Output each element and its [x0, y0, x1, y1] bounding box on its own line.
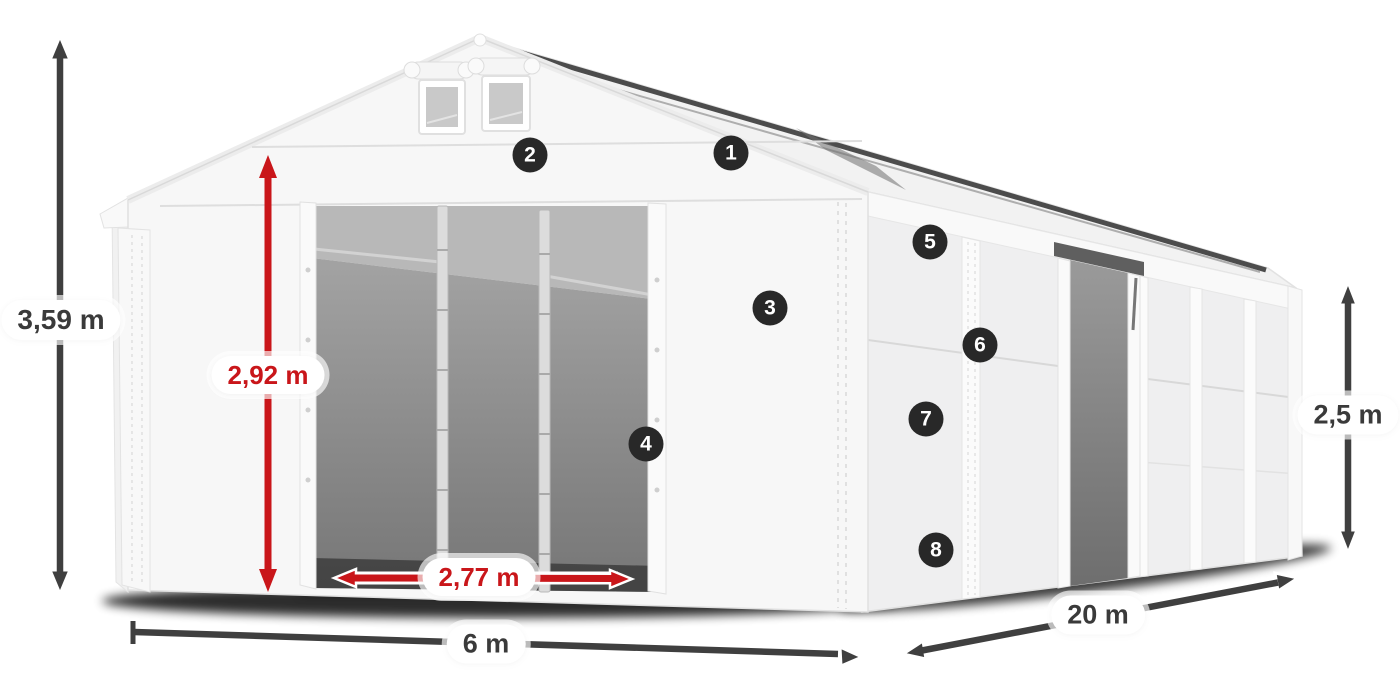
product-dimension-diagram: 3,59 m 2,92 m 2,77 m 6 m 20 m 2,5 m 1 2 …	[0, 0, 1400, 700]
marker-7: 7	[909, 402, 944, 437]
side-door	[1054, 242, 1144, 588]
marker-5: 5	[913, 225, 948, 260]
marker-2: 2	[513, 138, 548, 173]
door-frame-left	[300, 202, 316, 589]
marker-8: 8	[919, 533, 954, 568]
front-left-post	[118, 228, 150, 592]
marker-1: 1	[714, 136, 749, 171]
front-doors	[300, 202, 666, 594]
marker-6: 6	[963, 328, 998, 363]
ridge-cap	[474, 34, 486, 46]
door-height-label: 2,92 m	[212, 356, 325, 394]
interior-curtain	[312, 258, 660, 592]
marker-3: 3	[753, 291, 788, 326]
door-pole-right	[539, 210, 550, 592]
marker-4: 4	[629, 427, 664, 462]
door-pole-left	[437, 206, 448, 591]
side-length-label: 20 m	[1051, 596, 1145, 635]
total-height-label: 3,59 m	[1, 300, 120, 340]
side-height-label: 2,5 m	[1297, 396, 1398, 435]
front-width-label: 6 m	[447, 625, 526, 664]
tent-illustration	[0, 0, 1400, 700]
door-width-label: 2,77 m	[423, 558, 536, 596]
door-frame-right	[648, 203, 666, 594]
